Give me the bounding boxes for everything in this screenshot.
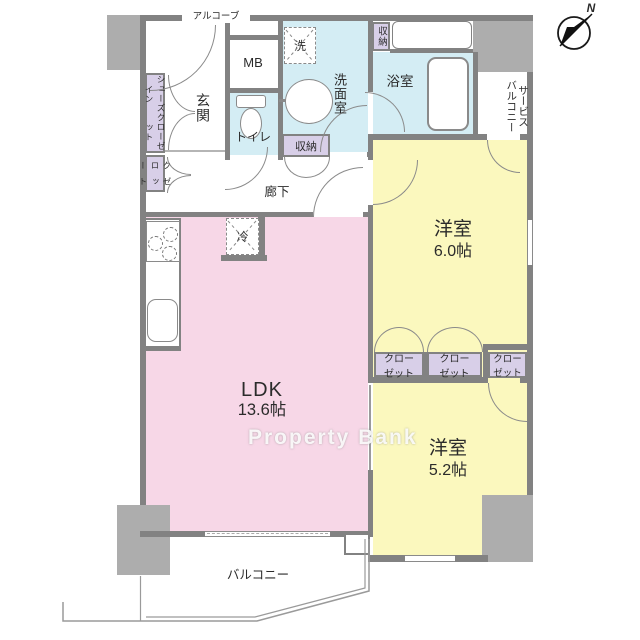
washer-space: 洗 [284, 27, 316, 64]
wall-western6-west-b [368, 205, 373, 217]
bath-counter [392, 21, 472, 49]
ldk-door-arc [313, 167, 363, 217]
toilet-tank [236, 95, 266, 108]
wall-western6-west-a [368, 140, 373, 160]
washroom-label: 洗面室 [328, 68, 346, 120]
wall-closet3-north [483, 344, 533, 350]
washroom-sink [285, 79, 333, 124]
wall-ldk-east-lower [368, 470, 373, 537]
compass-icon [558, 14, 592, 49]
refrigerator-space: 冷 [226, 218, 259, 255]
floor-plan: シューズイン クローゼット クロー ゼット 収納 収納 クローゼット クローゼッ… [0, 0, 640, 640]
service-balcony-label: サービス バルコニー [480, 78, 528, 134]
wall-counter-bottom-top [390, 49, 473, 53]
kitchen-sink [147, 299, 178, 342]
corridor-storage-door-left [284, 157, 306, 178]
compass-north-label: N [583, 2, 599, 15]
pillar-bottom-left [117, 505, 170, 575]
upper-storage: 収納 [372, 22, 390, 51]
bathroom-label: 浴室 [378, 74, 422, 89]
wall-bath-west [368, 52, 373, 92]
pillar-top-left [107, 15, 140, 70]
meter-box-label: MB [228, 56, 278, 71]
watermark: Property Bank [248, 426, 418, 450]
closet-1: クローゼット [374, 352, 424, 377]
window-western5-south [405, 555, 455, 562]
wall-bath-east [473, 52, 478, 134]
wall-fridge-south [221, 255, 267, 261]
entrance-label: 玄関 [190, 86, 210, 130]
wall-western6-north-right [520, 134, 533, 140]
stove-burner-2 [148, 236, 163, 251]
balcony-label: バルコニー [220, 568, 296, 582]
entrance-step [165, 150, 225, 152]
bathtub [427, 57, 469, 131]
alcove-label: アルコーブ [182, 12, 250, 23]
sliding-window-line [207, 533, 328, 534]
corridor-label: 廊下 [255, 185, 299, 199]
stove-burner-1 [163, 227, 178, 242]
ldk-area: 13.6帖 [222, 401, 302, 419]
pipe-space [344, 533, 370, 555]
western5-label: 洋室 [415, 438, 481, 459]
wall-mb-bottom [225, 88, 283, 93]
wall-corridor-south [146, 212, 313, 217]
ldk-label: LDK [222, 379, 302, 401]
window-ldk-south [205, 531, 330, 537]
western6-area: 6.0帖 [420, 243, 486, 261]
window-east [527, 220, 533, 265]
wall-western6-north-left [368, 134, 487, 140]
stove-burner-3 [162, 246, 177, 261]
pillar-bottom-right [482, 495, 533, 562]
toilet-door-arc [225, 147, 268, 190]
closet-3: クローゼット [488, 352, 527, 378]
wall-fridge-east [258, 217, 265, 257]
wall-ldk-east-upper [368, 217, 373, 340]
western6-label: 洋室 [420, 219, 486, 240]
wall-mb-top [225, 35, 283, 40]
closet-2: クローゼット [427, 352, 482, 377]
toilet-label: トイレ [230, 131, 276, 144]
balcony-railing-outer [63, 539, 369, 621]
corridor-storage-door-right [306, 157, 330, 178]
hall-closet: クロー ゼット [145, 155, 165, 192]
western5-area: 5.2帖 [415, 462, 481, 480]
pillar-top-right [473, 15, 533, 72]
